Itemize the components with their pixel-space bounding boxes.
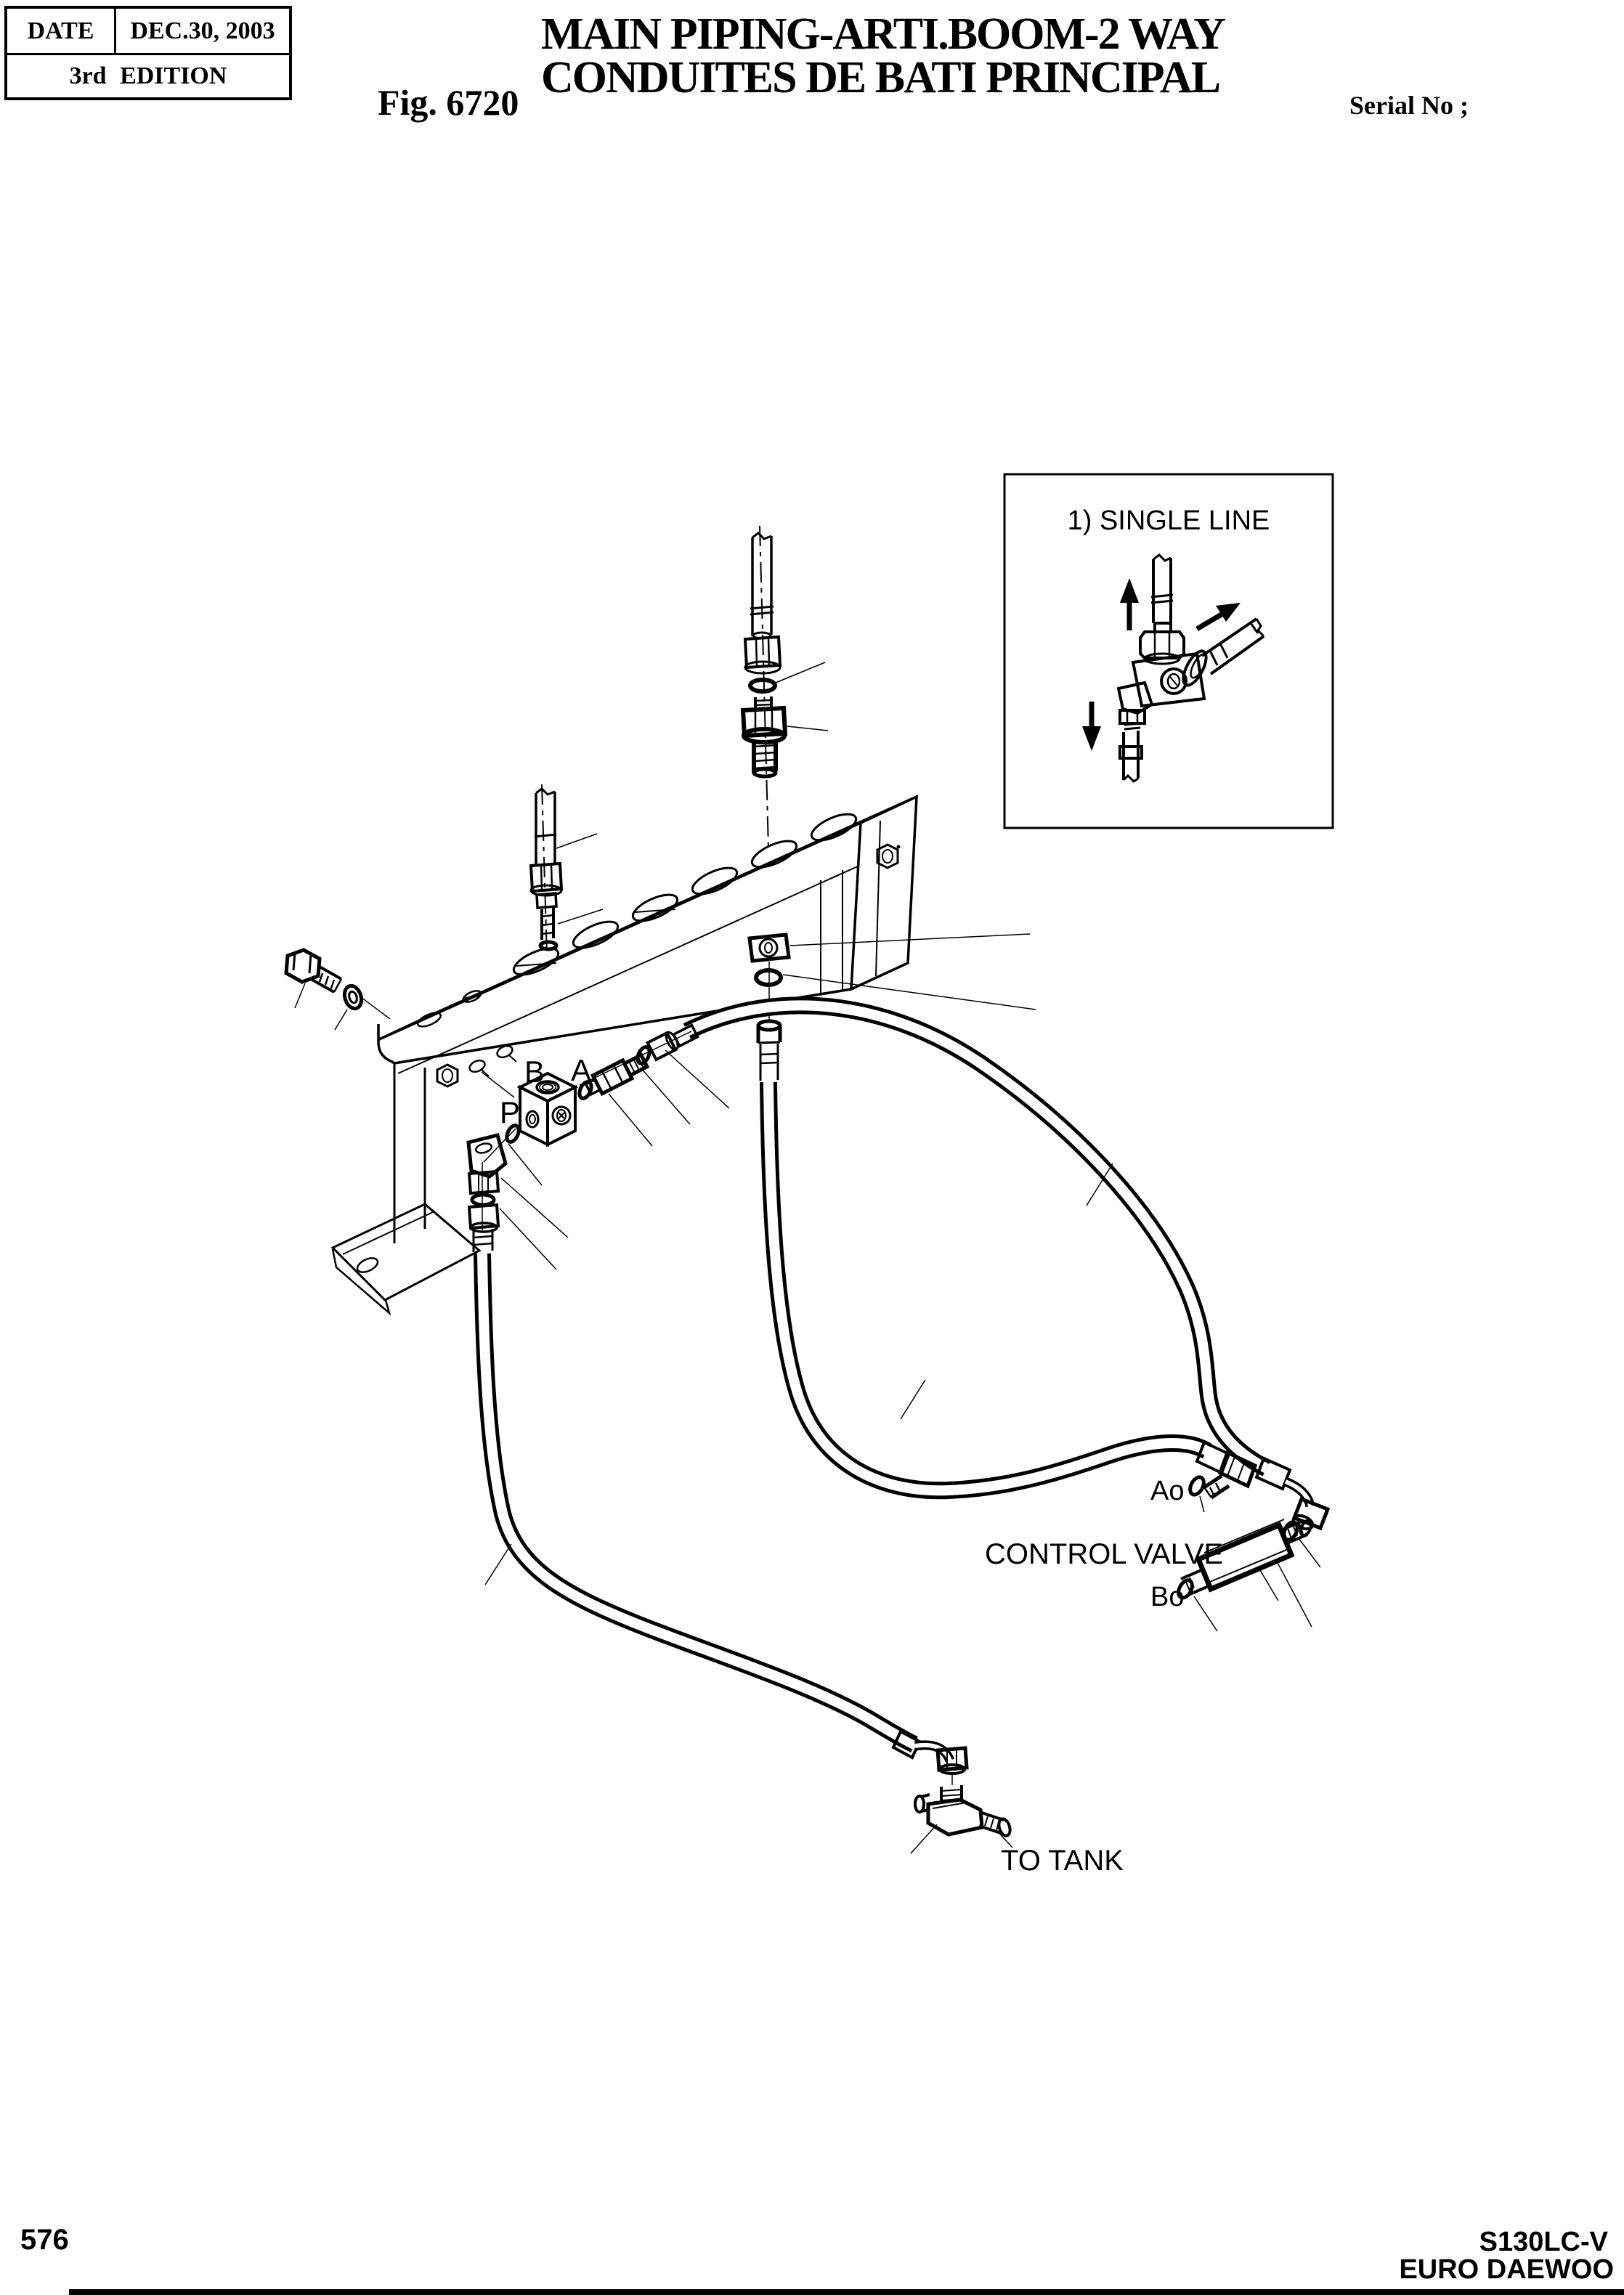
- mounting-bolt: [286, 950, 341, 1008]
- port-a-fittings: [577, 1025, 729, 1146]
- bolt-washer: [335, 983, 390, 1030]
- date-value: DEC.30, 2003: [116, 9, 289, 53]
- edition-label: 3rd EDITION: [7, 55, 289, 105]
- figure-number: Fig. 6720: [378, 81, 519, 123]
- port-b-label: B: [524, 1055, 545, 1089]
- port-p-label: P: [500, 1095, 520, 1130]
- page-title-fr: CONDUITES DE BATI PRINCIPAL: [541, 52, 1219, 104]
- inset-caption: 1) SINGLE LINE: [1004, 505, 1333, 537]
- to-tank-label: TO TANK: [1001, 1845, 1124, 1877]
- manual-page: DATE DEC.30, 2003 3rd EDITION Fig. 6720 …: [0, 0, 1624, 2295]
- hose-b-line: [768, 1082, 1207, 1490]
- left-tube-assembly: [531, 784, 603, 956]
- port-a-label: A: [571, 1053, 591, 1088]
- footer-brand: EURO DAEWOO: [1399, 2254, 1614, 2286]
- date-label: DATE: [7, 9, 116, 53]
- mounting-bracket: [333, 1063, 479, 1313]
- port-bo-label: Bo: [1150, 1582, 1184, 1613]
- upper-tube-assembly: [743, 526, 828, 848]
- port-p-fittings: [468, 1124, 568, 1270]
- page-number: 576: [20, 2224, 69, 2257]
- inset-shutoff-valve-drawing: [1082, 555, 1264, 781]
- serial-number-label: Serial No ;: [1349, 90, 1469, 121]
- port-ao-label: Ao: [1150, 1476, 1184, 1507]
- hose-p-line: [482, 1254, 914, 1744]
- control-valve-label: CONTROL VALVE: [985, 1538, 1223, 1571]
- exploded-piping-diagram: [0, 0, 1624, 2295]
- footer-model: S130LC-V: [1479, 2227, 1608, 2258]
- page-edge-bar: [69, 2289, 1624, 2295]
- revision-table: DATE DEC.30, 2003 3rd EDITION: [4, 6, 292, 100]
